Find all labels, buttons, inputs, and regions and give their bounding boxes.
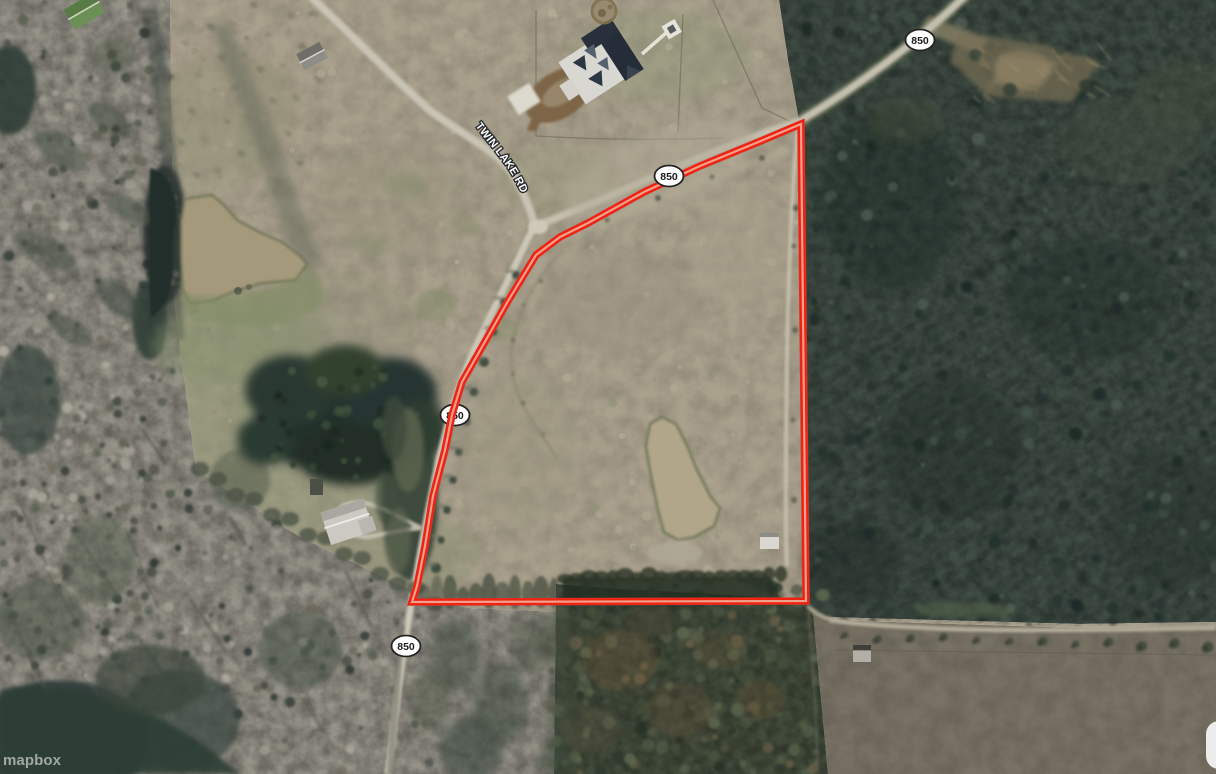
svg-text:850: 850 xyxy=(911,35,929,47)
svg-text:850: 850 xyxy=(397,641,415,653)
svg-text:mapbox: mapbox xyxy=(3,752,62,769)
svg-text:850: 850 xyxy=(660,171,678,183)
